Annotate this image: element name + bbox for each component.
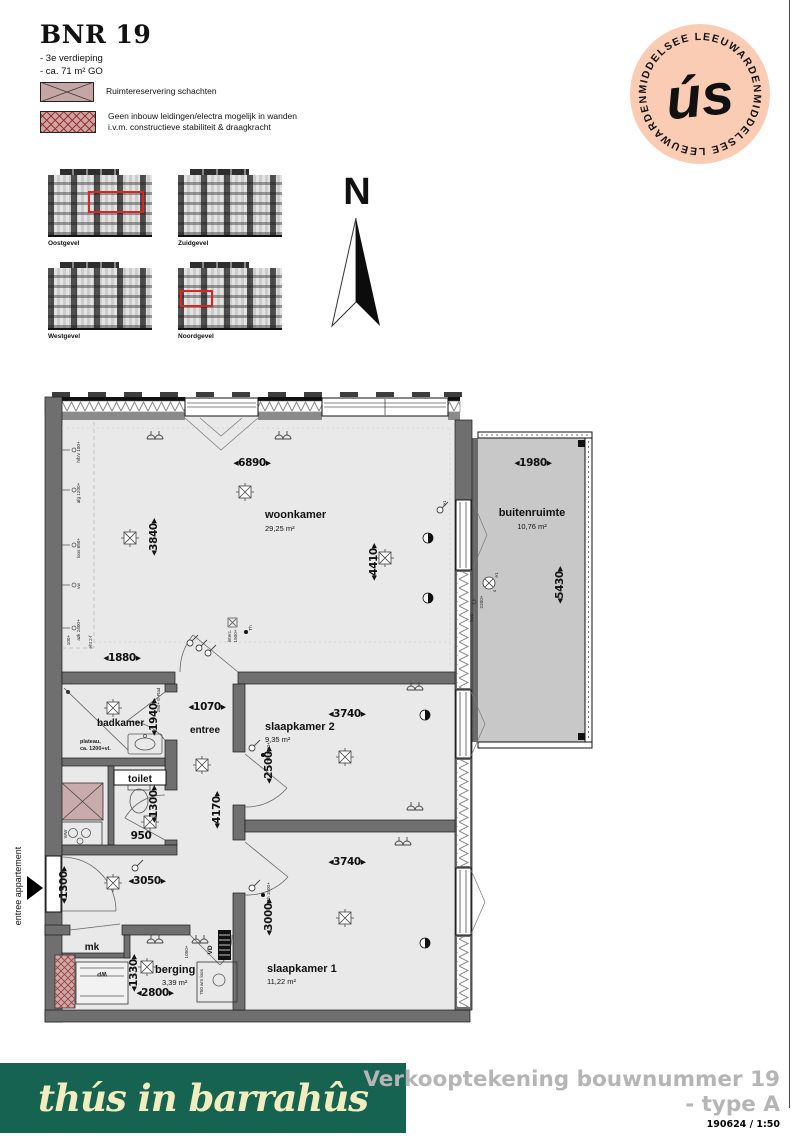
facade-oostgevel <box>48 175 152 237</box>
plateau-note-1: plateau, <box>80 739 101 745</box>
legend-label-shaft: Ruimtereservering schachten <box>106 86 217 97</box>
thermostat-label-slk2: Th 1500+ <box>266 742 271 762</box>
facade-label: Noordgevel <box>178 333 288 340</box>
north-label: N <box>343 172 370 213</box>
shaft-hatch-swatch <box>40 82 94 102</box>
legend-label-structural: Geen inbouw leidingen/electra mogelijk i… <box>108 111 297 133</box>
roof-strip <box>190 262 248 268</box>
dim-3740-slk1: ◂3740▸ <box>328 856 366 868</box>
legend-row-shaft: Ruimtereservering schachten <box>40 82 297 102</box>
room-label-berging: berging <box>155 964 195 976</box>
elevation-thumbnails: Oostgevel Zuidgevel Westgevel Noordgevel <box>48 168 288 340</box>
floor-plan: woonkamer 29,25 m² buitenruimte 10,76 m²… <box>40 390 600 1030</box>
dim-950: 950 <box>131 830 152 842</box>
dim-4410: ◂4410▸ <box>368 542 380 580</box>
kitchen-label-3: vw <box>76 583 81 589</box>
room-area-slaapkamer1: 11,22 m² <box>267 977 297 986</box>
kitchen-label-4: azk 2400+ <box>76 619 81 641</box>
b1050-label: 1050+ <box>184 945 189 958</box>
footer-brand-panel: thús in barrahûs <box>0 1063 406 1133</box>
room-label-entree: entree <box>190 725 220 736</box>
footer-drawing-title: Verkooptekening bouwnummer 19 - type A <box>360 1067 780 1118</box>
entree-appartement-label: entree appartement <box>13 826 27 946</box>
dim-3840: ◂3840▸ <box>148 517 160 555</box>
facade-label: Zuidgevel <box>178 240 288 247</box>
legend-row-structural: Geen inbouw leidingen/electra mogelijk i… <box>40 111 297 133</box>
dim-1070: ◂1070▸ <box>188 701 226 713</box>
floor-surfaces <box>62 416 585 1010</box>
kitchen-label-0: h/b'v 100+ <box>76 441 81 463</box>
kitchen-label-1: afg 1200+ <box>76 482 81 503</box>
dim-2800: ◂2800▸ <box>136 987 174 999</box>
apartment-marker <box>88 191 144 213</box>
h2200-label: 2200+ <box>479 595 484 608</box>
dim-1880: ◂1880▸ <box>103 652 141 664</box>
e1-label-balkon: e1 <box>494 572 499 578</box>
dim-3740-slk2: ◂3740▸ <box>328 708 366 720</box>
dim-3000: ◂3000▸ <box>263 897 275 935</box>
page-title: BNR 19 <box>40 20 151 49</box>
facade-noordgevel <box>178 268 282 330</box>
entrance-arrow-icon <box>27 876 43 900</box>
drawing-sheet: BNR 19 - 3e verdieping - ca. 71 m² GO Ru… <box>0 0 805 1148</box>
e1-label-woonkamer: e1 <box>442 500 447 506</box>
roof-strip <box>60 262 118 268</box>
roof-strip <box>60 169 118 175</box>
eht-label: eht 2-f <box>88 635 93 649</box>
roof-strip <box>190 169 248 175</box>
room-area-buitenruimte: 10,76 m² <box>517 522 547 531</box>
facade-westgevel <box>48 268 152 330</box>
legend-label-structural-line1: Geen inbouw leidingen/electra mogelijk i… <box>108 111 297 122</box>
sheet-border-line <box>789 0 790 1108</box>
wm-label: 750 wm loos <box>199 968 204 994</box>
room-label-toilet: toilet <box>128 774 153 785</box>
title-area: - ca. 71 m² GO <box>40 66 151 79</box>
thermostat-label-hal: Th <box>248 625 253 631</box>
room-label-buitenruimte: buitenruimte <box>499 507 566 519</box>
logo-script: ús <box>663 61 737 133</box>
legend: Ruimtereservering schachten Geen inbouw … <box>40 82 297 142</box>
thermostat-label-slk1: Th 1500+ <box>266 882 271 902</box>
brand-logo: thús in barrahûs <box>38 1076 368 1120</box>
dim-1330: ◂1330▸ <box>128 953 140 991</box>
erad-label: 250+ E-Rad <box>156 687 161 712</box>
facade-label: Oostgevel <box>48 240 158 247</box>
room-label-badkamer: badkamer <box>97 718 144 729</box>
shower-head <box>66 690 70 694</box>
vd-label: VD <box>207 945 214 954</box>
room-label-mk: mk <box>85 942 100 953</box>
dim-1300-hal: ◂1300▸ <box>58 865 70 903</box>
plateau-note-2: ca. 1200+vl. <box>80 746 111 752</box>
room-area-woonkamer: 29,25 m² <box>265 524 295 533</box>
title-floor: - 3e verdieping <box>40 53 151 66</box>
dim-1300-toilet: ◂1300▸ <box>148 784 160 822</box>
middelsee-logo: MIDDELSEE LEEUWARDEN MIDDELSEE LEEUWARDE… <box>626 20 776 170</box>
elevation-noordgevel: Noordgevel <box>178 261 288 340</box>
title-block: BNR 19 - 3e verdieping - ca. 71 m² GO <box>40 20 151 79</box>
dim-5430: ◂5430▸ <box>554 565 566 603</box>
elevation-westgevel: Westgevel <box>48 261 158 340</box>
dim-3050: ◂3050▸ <box>128 875 166 887</box>
legend-label-structural-line2: i.v.m. constructieve stabiliteit & draag… <box>108 122 297 133</box>
dim-1980: ◂1980▸ <box>514 457 552 469</box>
intercom-label: interc. <box>227 630 232 643</box>
ww-label: WW <box>63 829 68 838</box>
room-label-slaapkamer1: slaapkamer 1 <box>267 963 337 975</box>
facade-label: Westgevel <box>48 333 158 340</box>
footer-title-line2: - type A <box>360 1092 780 1117</box>
wp-label: WP <box>97 970 107 976</box>
footer-title-line1: Verkooptekening bouwnummer 19 <box>360 1067 780 1092</box>
apartment-marker <box>180 290 213 307</box>
structural-hatch-swatch <box>40 111 96 133</box>
hwa-label: hwa <box>469 613 474 622</box>
intercom-height-label: 1500+ <box>233 629 238 642</box>
dim-6890: ◂6890▸ <box>233 457 271 469</box>
room-label-woonkamer: woonkamer <box>264 509 327 521</box>
facade-zuidgevel <box>178 175 282 237</box>
elevation-oostgevel: Oostgevel <box>48 168 158 247</box>
north-arrow: N <box>326 172 390 334</box>
north-arrow-left <box>332 218 356 326</box>
footer-date-scale: 190624 / 1:50 <box>707 1119 780 1130</box>
elevation-zuidgevel: Zuidgevel <box>178 168 288 247</box>
kitchen-label-2: loos 650+ <box>76 538 81 558</box>
north-arrow-right <box>356 218 380 326</box>
room-label-slaapkamer2: slaapkamer 2 <box>265 721 335 733</box>
h100-label: 100+ <box>66 635 71 646</box>
dim-4170: ◂4170▸ <box>211 790 223 828</box>
room-area-berging: 3,39 m² <box>162 978 188 987</box>
